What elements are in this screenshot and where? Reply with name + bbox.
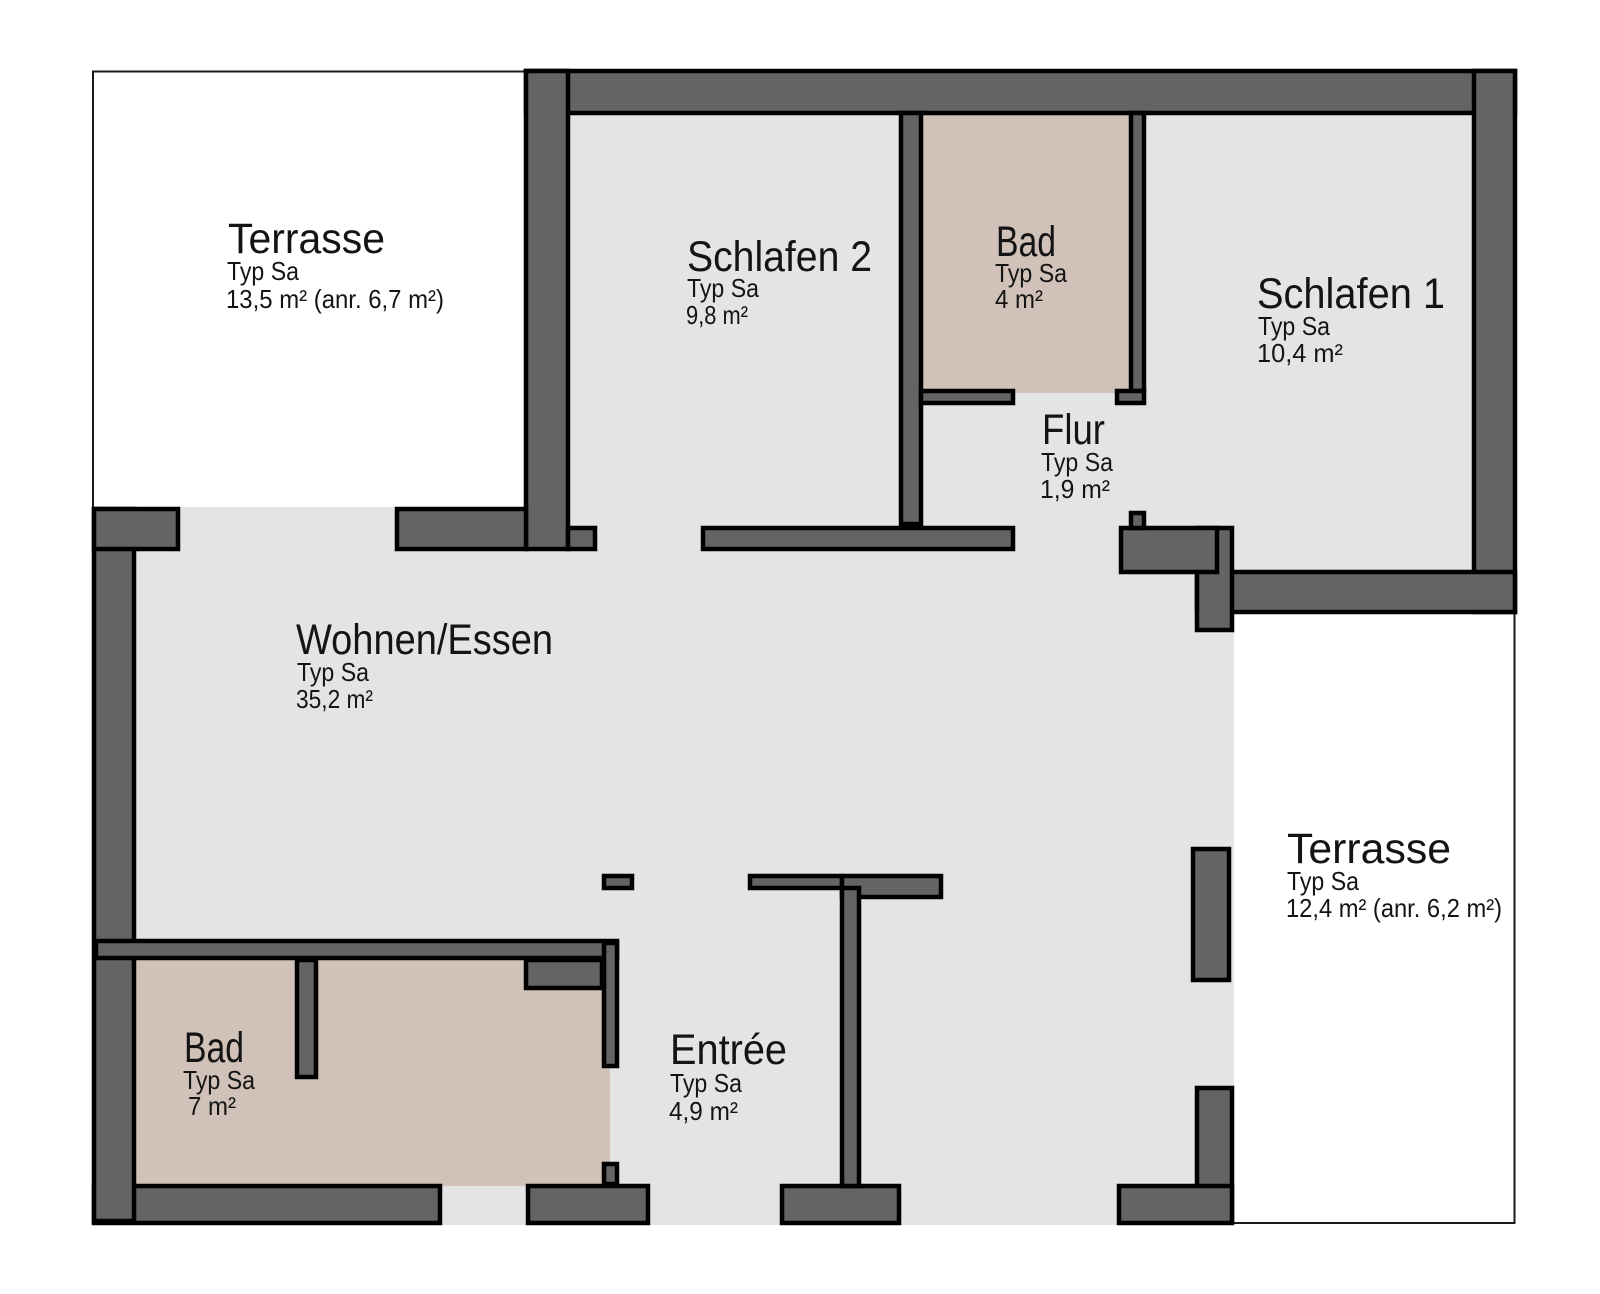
svg-text:9,8 m²: 9,8 m²: [686, 300, 748, 330]
svg-text:35,2 m²: 35,2 m²: [296, 684, 373, 714]
svg-text:12,4 m² (anr. 6,2 m²): 12,4 m² (anr. 6,2 m²): [1286, 893, 1502, 923]
svg-text:4,9 m²: 4,9 m²: [669, 1096, 738, 1126]
svg-text:Typ Sa: Typ Sa: [687, 273, 759, 303]
svg-text:Typ Sa: Typ Sa: [297, 657, 369, 687]
svg-text:1,9 m²: 1,9 m²: [1040, 474, 1110, 504]
svg-text:Typ Sa: Typ Sa: [1287, 866, 1359, 896]
svg-text:10,4 m²: 10,4 m²: [1257, 338, 1343, 368]
svg-text:7 m²: 7 m²: [188, 1091, 236, 1121]
svg-text:13,5 m² (anr. 6,7 m²): 13,5 m² (anr. 6,7 m²): [226, 284, 444, 314]
svg-text:4 m²: 4 m²: [995, 284, 1043, 314]
svg-text:Entrée: Entrée: [670, 1026, 787, 1074]
svg-text:Typ Sa: Typ Sa: [1041, 447, 1113, 477]
svg-text:Typ Sa: Typ Sa: [1258, 311, 1330, 341]
svg-text:Typ Sa: Typ Sa: [227, 256, 299, 286]
svg-text:Typ Sa: Typ Sa: [670, 1068, 742, 1098]
